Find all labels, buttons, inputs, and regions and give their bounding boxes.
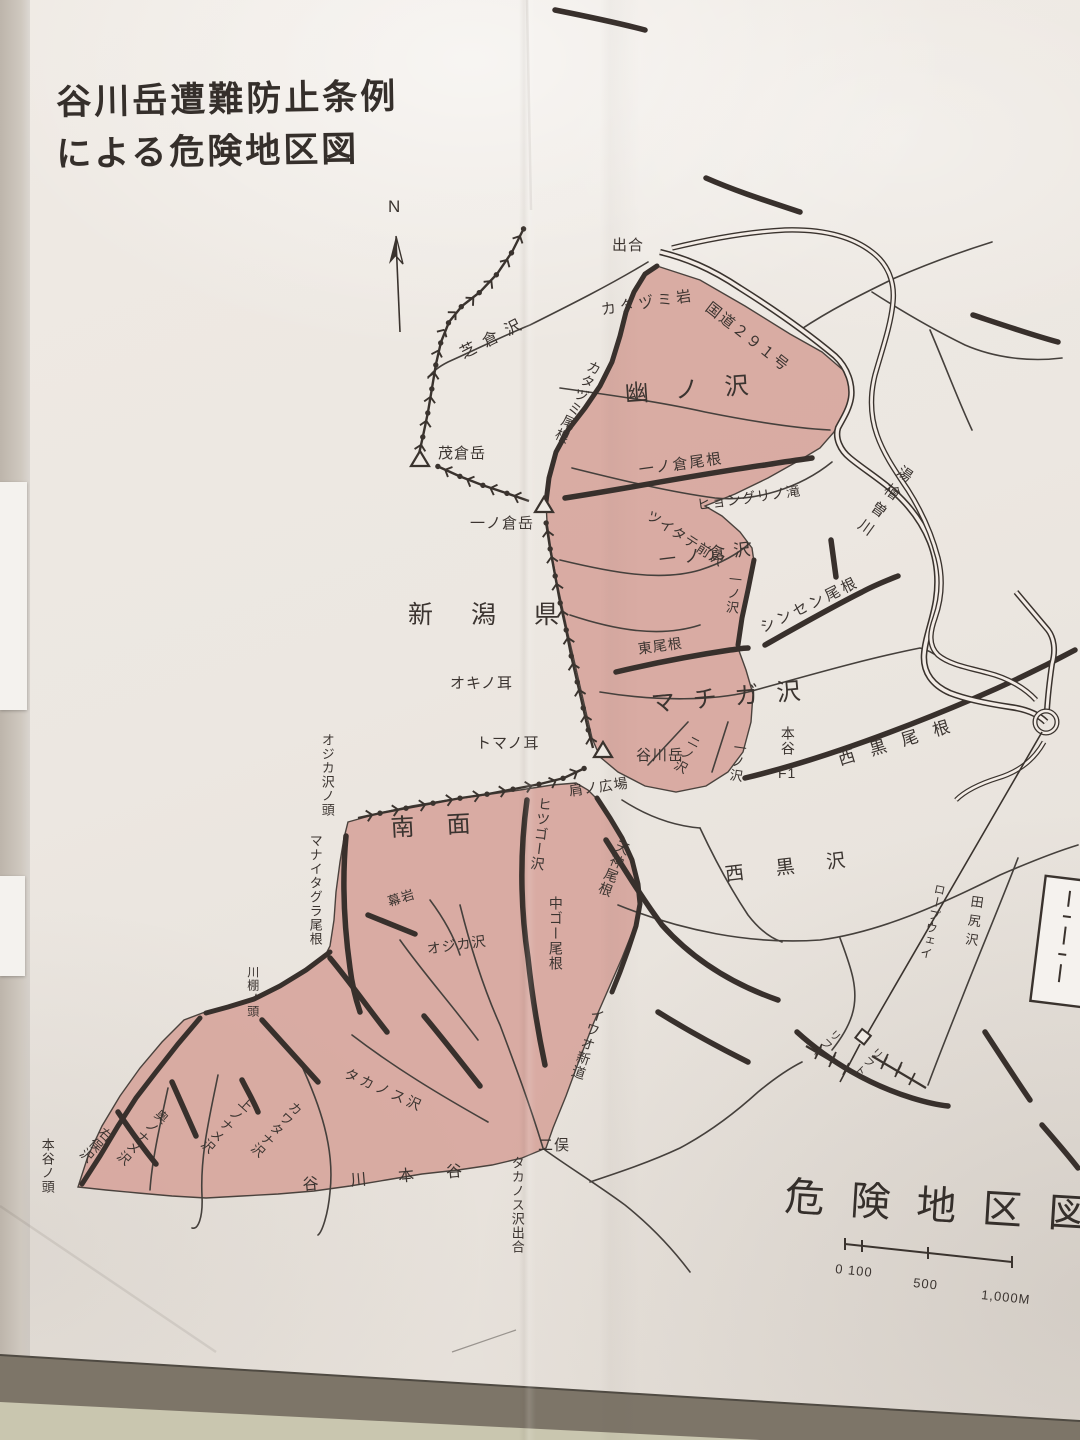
label-tomano-mimi: トマノ耳 [476,736,540,752]
label-ojikasawa-no-kashira: オジカ沢ノ頭 [320,733,334,817]
label-deai: 出合 [612,238,644,254]
label-f1: F1 [778,766,796,781]
map-poster-photo: 谷川岳遭難防止条例 による危険地区図 N 出合 カタヅミ岩 国道２９１号 芝倉沢… [0,0,1080,1440]
cut-off-label-box [1030,876,1080,1008]
danger-zone-south [78,783,640,1198]
page-title-line1: 谷川岳遭難防止条例 [56,78,399,121]
label-hontani-no-kashira: 本谷ノ頭 [40,1138,54,1194]
page-title-line2: による危険地区図 [56,131,360,173]
label-hontani: 本谷 [780,726,795,756]
label-tanigawa-dake: 谷川岳 [636,748,684,764]
label-shigekura-dake: 茂倉岳 [438,446,486,462]
label-nanmen: 南面 [390,810,503,841]
label-futamata: 二俣 [538,1138,570,1154]
label-manaitagura-one: マナイタグラ尾根 [308,834,322,946]
nishikuro-one-ridge [745,650,1075,778]
label-okino-mimi: オキノ耳 [450,676,513,692]
scale-label-mid: 500 [913,1276,939,1292]
shigekura-dake-triangle [411,451,429,466]
scale-bar [845,1238,1012,1268]
label-ichino-sawa-upper: 一ノ沢 [724,572,742,615]
label-takanosu-sawa-deai: タカノス沢出合 [510,1156,524,1254]
north-arrow [389,236,403,332]
ropeway-cable-line [866,732,1042,1036]
label-nakago-one: 中ゴー尾根 [548,896,563,971]
label-kawadana-no-kashira: 川棚ノ頭 [246,966,259,1018]
label-ichinokura-dake: 一ノ倉岳 [470,516,534,532]
compass-n-label: N [388,198,401,216]
prefecture-label: 新潟県 [408,602,597,629]
